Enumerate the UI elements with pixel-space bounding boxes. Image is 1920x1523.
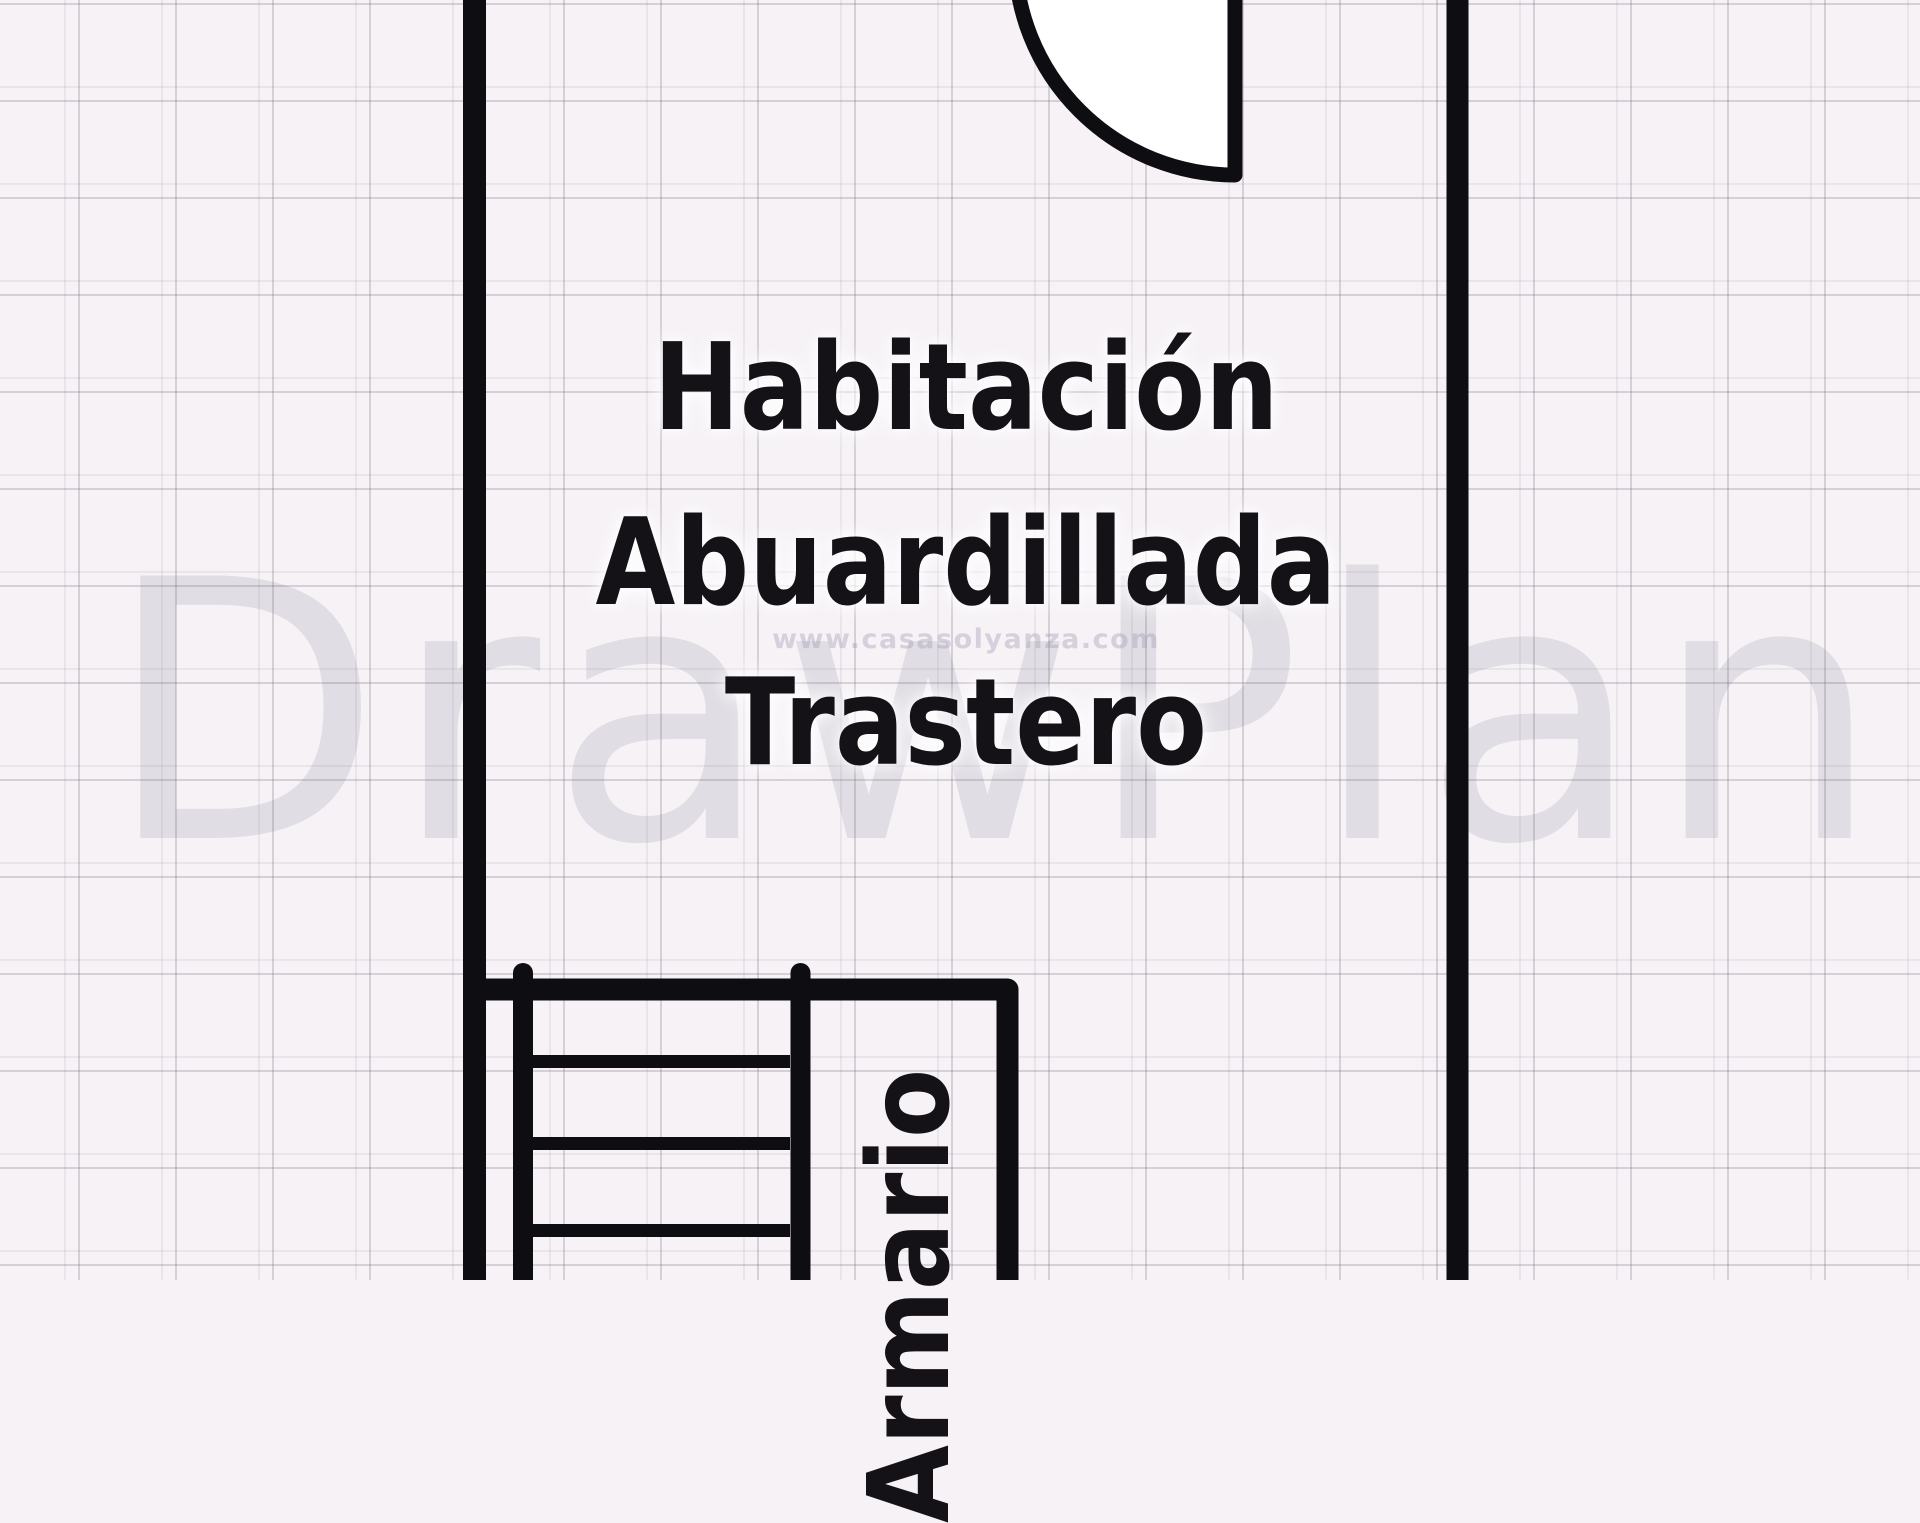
closet-label: Armario [845,1100,975,1523]
door-swing-arc [1015,0,1235,175]
